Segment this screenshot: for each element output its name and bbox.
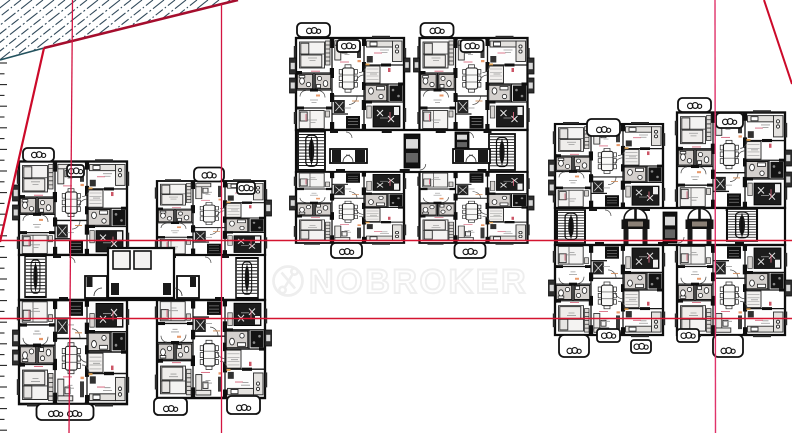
svg-text:NOBROKER: NOBROKER: [309, 263, 528, 301]
